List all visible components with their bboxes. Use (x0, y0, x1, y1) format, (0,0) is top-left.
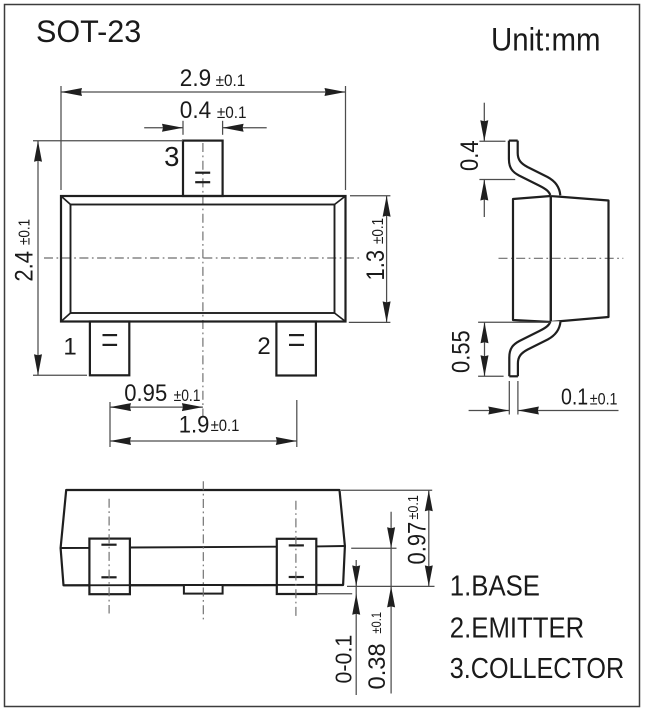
svg-text:0.38: 0.38 (363, 643, 390, 689)
svg-text:0.1: 0.1 (561, 384, 588, 410)
svg-text:3.COLLECTOR: 3.COLLECTOR (450, 653, 624, 685)
svg-text:±0.1: ±0.1 (217, 103, 247, 122)
svg-text:3: 3 (164, 141, 179, 172)
svg-text:1.BASE: 1.BASE (450, 570, 540, 601)
svg-text:0-0.1: 0-0.1 (331, 635, 357, 684)
svg-text:1.3: 1.3 (362, 250, 390, 281)
svg-text:1: 1 (63, 334, 76, 361)
svg-text:0.95: 0.95 (124, 379, 167, 406)
svg-text:±0.1: ±0.1 (211, 417, 240, 435)
svg-text:±0.1: ±0.1 (216, 71, 246, 90)
svg-text:±0.1: ±0.1 (174, 387, 201, 405)
svg-text:±0.1: ±0.1 (370, 218, 387, 244)
svg-text:±0.1: ±0.1 (590, 390, 618, 408)
svg-text:2: 2 (257, 333, 270, 360)
svg-text:0.97: 0.97 (403, 522, 431, 565)
svg-text:0.55: 0.55 (447, 330, 475, 373)
svg-text:±0.1: ±0.1 (17, 219, 34, 245)
svg-text:2.4: 2.4 (10, 251, 38, 282)
svg-text:0.4: 0.4 (180, 96, 211, 123)
svg-text:1.9: 1.9 (179, 410, 210, 437)
svg-text:2.EMITTER: 2.EMITTER (450, 612, 584, 643)
svg-text:SOT-23: SOT-23 (36, 14, 141, 50)
svg-text:±0.1: ±0.1 (404, 495, 421, 520)
svg-text:2.9: 2.9 (180, 64, 211, 91)
svg-text:±0.1: ±0.1 (369, 612, 384, 634)
svg-text:0.4: 0.4 (456, 140, 484, 171)
svg-text:Unit:mm: Unit:mm (491, 21, 601, 57)
